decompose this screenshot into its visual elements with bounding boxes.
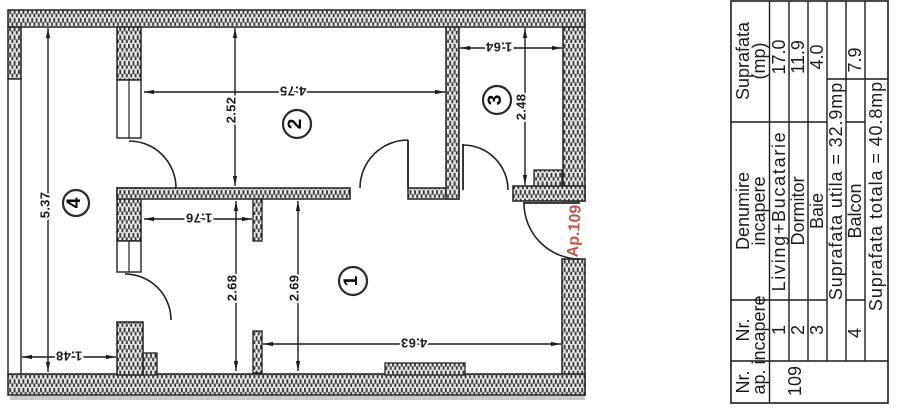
svg-text:(mp): (mp) <box>749 43 769 80</box>
svg-text:1: 1 <box>341 275 362 286</box>
svg-text:Suprafata totala = 40.8mp: Suprafata totala = 40.8mp <box>866 81 886 311</box>
svg-text:4.0: 4.0 <box>807 44 827 69</box>
svg-text:4: 4 <box>64 197 85 208</box>
svg-text:2: 2 <box>788 325 808 335</box>
svg-text:3: 3 <box>807 325 827 335</box>
svg-text:incapere: incapere <box>749 176 769 245</box>
svg-text:4: 4 <box>845 328 865 338</box>
svg-text:2.68: 2.68 <box>224 275 239 302</box>
svg-text:3: 3 <box>485 95 506 106</box>
svg-text:5.37: 5.37 <box>37 192 52 219</box>
svg-text:1: 1 <box>769 325 789 335</box>
svg-text:4.63: 4.63 <box>401 336 428 351</box>
svg-text:Suprafata utila = 32.9mp: Suprafata utila = 32.9mp <box>826 82 846 300</box>
svg-text:ap.: ap. <box>749 369 769 394</box>
svg-text:11.9: 11.9 <box>788 40 808 74</box>
svg-text:Living+Bucatarie: Living+Bucatarie <box>769 131 789 292</box>
svg-text:7.9: 7.9 <box>845 47 865 72</box>
svg-text:Balcon: Balcon <box>845 183 865 238</box>
svg-text:4.75: 4.75 <box>280 84 307 99</box>
svg-text:17.0: 17.0 <box>769 39 789 74</box>
svg-text:1.64: 1.64 <box>485 40 512 55</box>
svg-text:Baie: Baie <box>807 193 827 229</box>
svg-text:2.69: 2.69 <box>286 275 301 302</box>
svg-text:2.48: 2.48 <box>513 94 528 121</box>
svg-text:Dormitor: Dormitor <box>788 176 808 245</box>
svg-text:109: 109 <box>785 366 805 396</box>
svg-text:incapere: incapere <box>749 295 769 364</box>
svg-text:2: 2 <box>285 119 306 130</box>
svg-text:1.76: 1.76 <box>186 211 213 226</box>
svg-text:Ap.109: Ap.109 <box>565 204 585 258</box>
svg-text:2.52: 2.52 <box>223 97 238 124</box>
svg-text:1.48: 1.48 <box>56 349 83 364</box>
